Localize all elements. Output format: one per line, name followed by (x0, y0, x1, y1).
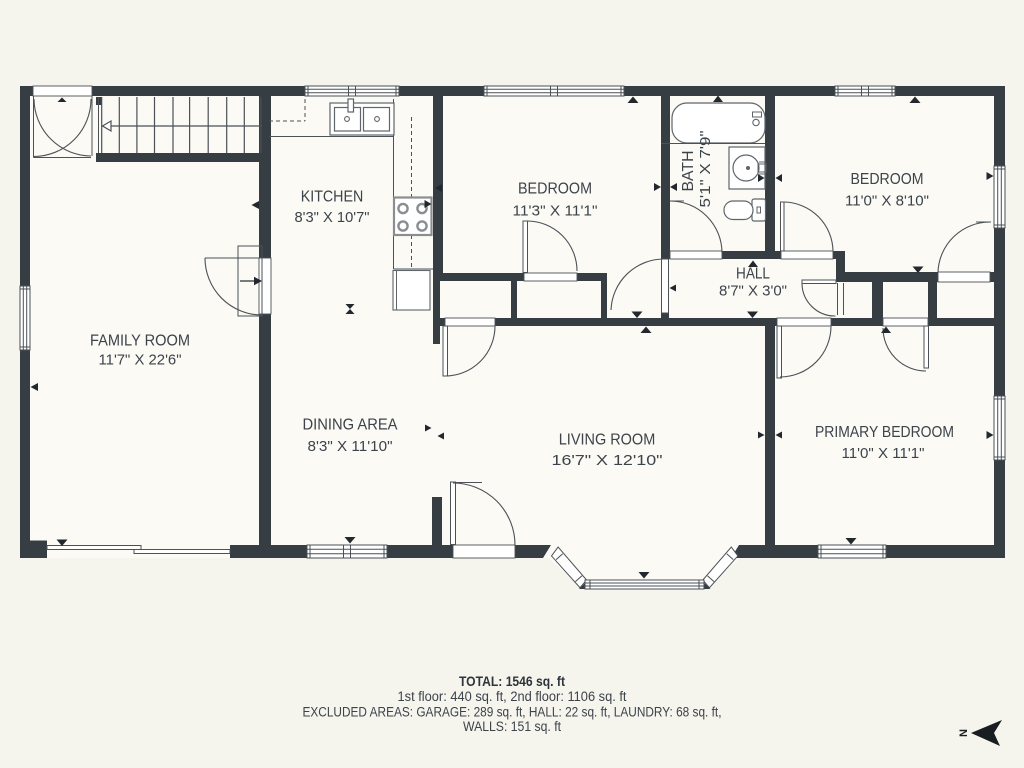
svg-text:KITCHEN: KITCHEN (301, 189, 364, 206)
svg-text:8'3" X 11'10": 8'3" X 11'10" (308, 438, 393, 455)
svg-text:1st floor: 440 sq. ft, 2nd flo: 1st floor: 440 sq. ft, 2nd floor: 1106 s… (398, 689, 627, 704)
svg-text:8'7" X 3'0": 8'7" X 3'0" (719, 283, 787, 300)
svg-text:11'0" X 8'10": 11'0" X 8'10" (845, 193, 929, 210)
svg-text:DINING AREA: DINING AREA (303, 417, 398, 434)
svg-text:HALL: HALL (736, 266, 770, 283)
svg-text:EXCLUDED AREAS: GARAGE: 289 sq: EXCLUDED AREAS: GARAGE: 289 sq. ft, HALL… (303, 705, 722, 720)
svg-text:N: N (958, 729, 970, 737)
svg-text:PRIMARY BEDROOM: PRIMARY BEDROOM (815, 424, 954, 441)
svg-text:8'3" X 10'7": 8'3" X 10'7" (295, 209, 370, 226)
svg-text:16'7" X 12'10": 16'7" X 12'10" (552, 452, 663, 469)
svg-text:WALLS: 151 sq. ft: WALLS: 151 sq. ft (463, 719, 561, 734)
svg-text:11'3" X 11'1": 11'3" X 11'1" (513, 203, 598, 220)
svg-text:11'7" X 22'6": 11'7" X 22'6" (99, 352, 182, 369)
svg-text:5'1" X 7'9": 5'1" X 7'9" (697, 131, 714, 208)
svg-text:TOTAL: 1546 sq. ft: TOTAL: 1546 sq. ft (459, 674, 565, 689)
svg-text:BEDROOM: BEDROOM (518, 181, 592, 198)
svg-text:BEDROOM: BEDROOM (851, 171, 924, 188)
svg-text:11'0" X 11'1": 11'0" X 11'1" (842, 445, 925, 462)
svg-text:FAMILY ROOM: FAMILY ROOM (90, 333, 190, 350)
svg-text:LIVING ROOM: LIVING ROOM (559, 432, 656, 449)
svg-text:BATH: BATH (680, 151, 697, 192)
